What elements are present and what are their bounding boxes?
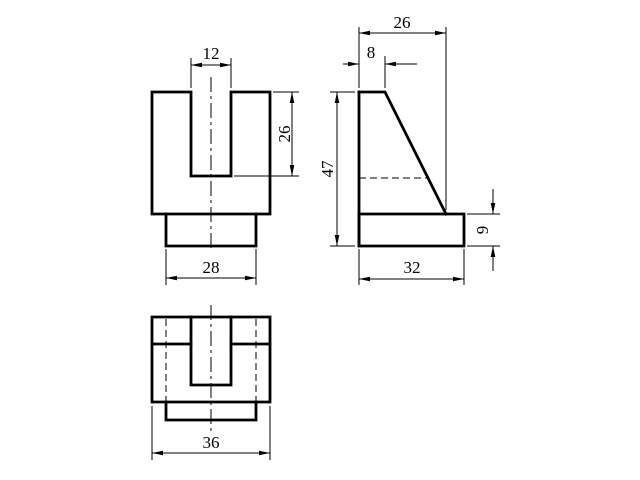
dimension-arrow-icon [335, 92, 340, 103]
dimension-label: 26 [394, 13, 411, 32]
dimension-9: 9 [467, 189, 500, 271]
dimension-arrow-icon [491, 246, 496, 257]
side-view-outline [359, 214, 464, 246]
dimension-label: 36 [203, 433, 220, 452]
dimension-label: 9 [473, 226, 492, 235]
dimension-arrow-icon [385, 62, 396, 67]
dimension-label: 28 [203, 258, 220, 277]
dimension-32: 32 [359, 249, 464, 285]
dimension-label: 47 [318, 160, 337, 178]
dimension-arrow-icon [359, 277, 370, 282]
dimension-arrow-icon [491, 203, 496, 214]
dimension-26: 26 [234, 92, 299, 176]
dimension-arrow-icon [245, 276, 256, 281]
dimension-arrow-icon [335, 235, 340, 246]
bottom-view [152, 305, 270, 431]
dimension-arrow-icon [453, 277, 464, 282]
dimension-label: 32 [404, 258, 421, 277]
dimension-arrow-icon [220, 63, 231, 68]
dimension-arrow-icon [359, 31, 370, 36]
dimension-label: 12 [203, 44, 220, 63]
front-view [152, 77, 270, 252]
dimension-arrow-icon [191, 63, 202, 68]
dimension-47: 47 [318, 92, 355, 246]
dimension-label: 26 [275, 126, 294, 143]
dimension-arrow-icon [290, 92, 295, 103]
dimension-arrow-icon [435, 31, 446, 36]
dimension-8: 8 [343, 43, 417, 88]
side-view [359, 92, 464, 246]
drawing-svg: 1226282684732936 [0, 0, 640, 480]
dimension-arrow-icon [152, 451, 163, 456]
dimension-arrow-icon [348, 62, 359, 67]
dimension-28: 28 [166, 249, 256, 285]
technical-drawing-page: 1226282684732936 [0, 0, 640, 480]
dimension-arrow-icon [290, 165, 295, 176]
side-view-outline [359, 92, 446, 214]
dimension-label: 8 [367, 43, 376, 62]
dimension-arrow-icon [166, 276, 177, 281]
dimension-arrow-icon [259, 451, 270, 456]
